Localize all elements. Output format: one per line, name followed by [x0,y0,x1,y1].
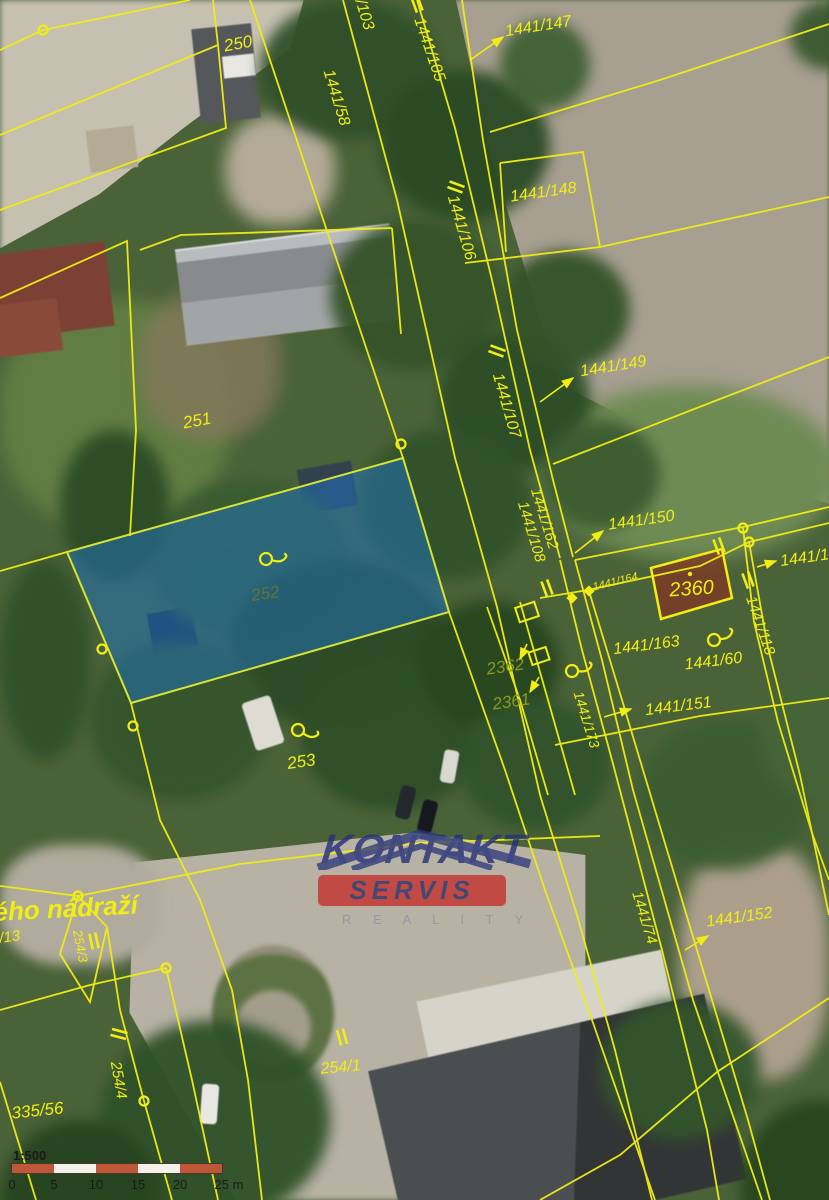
building-parcel-dot [688,572,692,576]
scale-bar: 1:500 0510152025 m [0,1146,270,1200]
parcel-label: 1441/152 [705,904,774,930]
parcel-label: 2360 [668,576,715,601]
vertex-circle-marker [98,645,107,654]
outbuilding-outline [515,602,539,622]
parcel-label: 2361 [490,690,531,714]
parcel-label: 1441/147 [504,13,574,40]
parcel-label: 1441/58 [320,68,353,128]
scale-tick-label: 0 [8,1177,15,1192]
parcel-label: 335/56 [11,1098,65,1122]
scale-bar-segment [180,1164,222,1173]
selected-parcel-252[interactable] [67,458,449,703]
scale-tick-label: 20 [173,1177,187,1192]
parcel-label: /13 [0,927,22,947]
scale-ratio: 1:500 [13,1148,46,1163]
parcel-label: 1441/150 [607,507,676,533]
scale-bar-segment [54,1164,96,1173]
boundary-tick-marker [488,345,505,356]
scale-tick-label: 25 m [215,1177,244,1192]
label-arrow [540,378,573,402]
label-arrow [530,677,539,692]
parcel-label: 1441/164 [592,571,639,594]
watermark: KONTAKT SERVIS R E A L I T Y [300,826,560,927]
cadastral-map-canvas[interactable]: 250/1031441/581441/1051441/1471441/14814… [0,0,829,1200]
parcel-label: 1441/118 [742,594,778,658]
boundary-tick-marker [337,1028,347,1045]
parcel-label: 1441/107 [489,371,524,441]
parcel-label: 251 [180,409,212,433]
watermark-tagline: R E A L I T Y [342,912,560,927]
parcel-label: 1441/148 [509,179,578,205]
land-use-symbol-icon [292,724,318,737]
watermark-title: KONTAKT [320,826,563,873]
boundary-tick-marker [447,181,464,192]
scale-bar-segment [12,1164,54,1173]
watermark-subtitle: SERVIS [349,875,474,906]
label-arrow [575,531,603,553]
label-arrow [520,644,527,659]
parcel-label: 1441/60 [684,650,744,674]
watermark-subtitle-box: SERVIS [318,875,506,906]
parcel-label: 250 [221,32,254,56]
scale-bar-segment [138,1164,180,1173]
land-use-symbol-icon [706,622,734,649]
parcel-label: ého nádraží [0,889,141,927]
boundary-tick-marker [742,571,753,588]
cadastral-overlay: 250/1031441/581441/1051441/1471441/14814… [0,0,829,1200]
label-arrow [470,37,503,60]
scale-bar-segment [96,1164,138,1173]
scale-tick-label: 15 [131,1177,145,1192]
parcel-label: 1441/74 [628,889,660,946]
scale-tick-label: 5 [50,1177,57,1192]
parcel-label: /103 [351,0,377,32]
parcel-label: 253 [285,750,317,773]
parcel-label: 254/3 [70,928,91,965]
label-arrow [757,561,776,567]
outbuilding-outline [528,647,549,665]
boundary-tick-marker [541,579,552,596]
parcel-label: 1441/149 [579,353,648,380]
scale-tick-label: 10 [89,1177,103,1192]
parcel-label: 1441/105 [410,15,448,84]
parcel-label: 1441/163 [612,633,680,658]
parcel-label: 1441/1 [779,546,829,570]
parcel-label: 254/4 [107,1059,130,1100]
scale-bar-segments [12,1164,222,1173]
parcel-label: 254/1 [319,1057,361,1078]
boundary-tick-marker [89,933,98,950]
